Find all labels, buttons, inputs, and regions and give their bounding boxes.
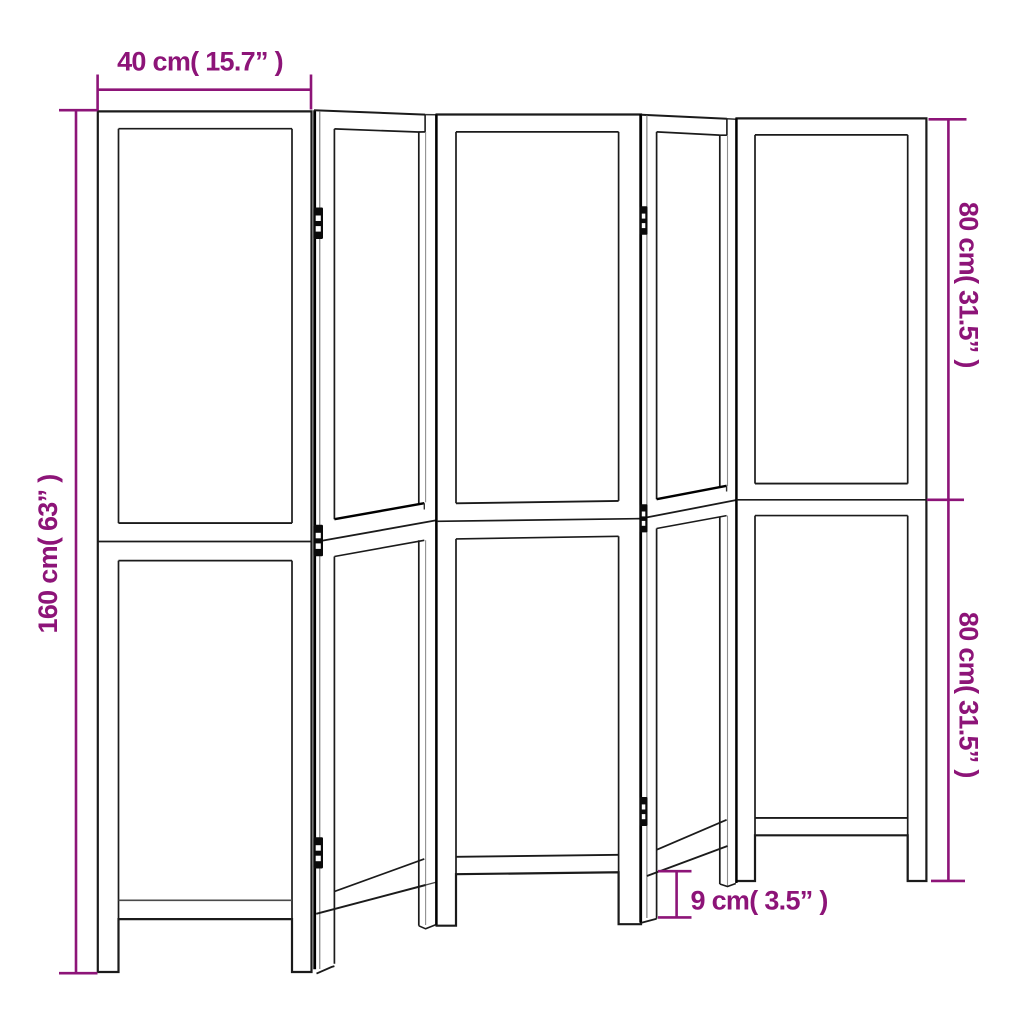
svg-text:80 cm( 31.5” ): 80 cm( 31.5” )	[953, 612, 983, 778]
svg-text:9 cm( 3.5” ): 9 cm( 3.5” )	[691, 886, 828, 916]
svg-text:160 cm( 63” ): 160 cm( 63” )	[33, 475, 63, 634]
svg-text:40 cm( 15.7” ): 40 cm( 15.7” )	[117, 47, 283, 77]
svg-text:80 cm( 31.5” ): 80 cm( 31.5” )	[953, 202, 983, 368]
